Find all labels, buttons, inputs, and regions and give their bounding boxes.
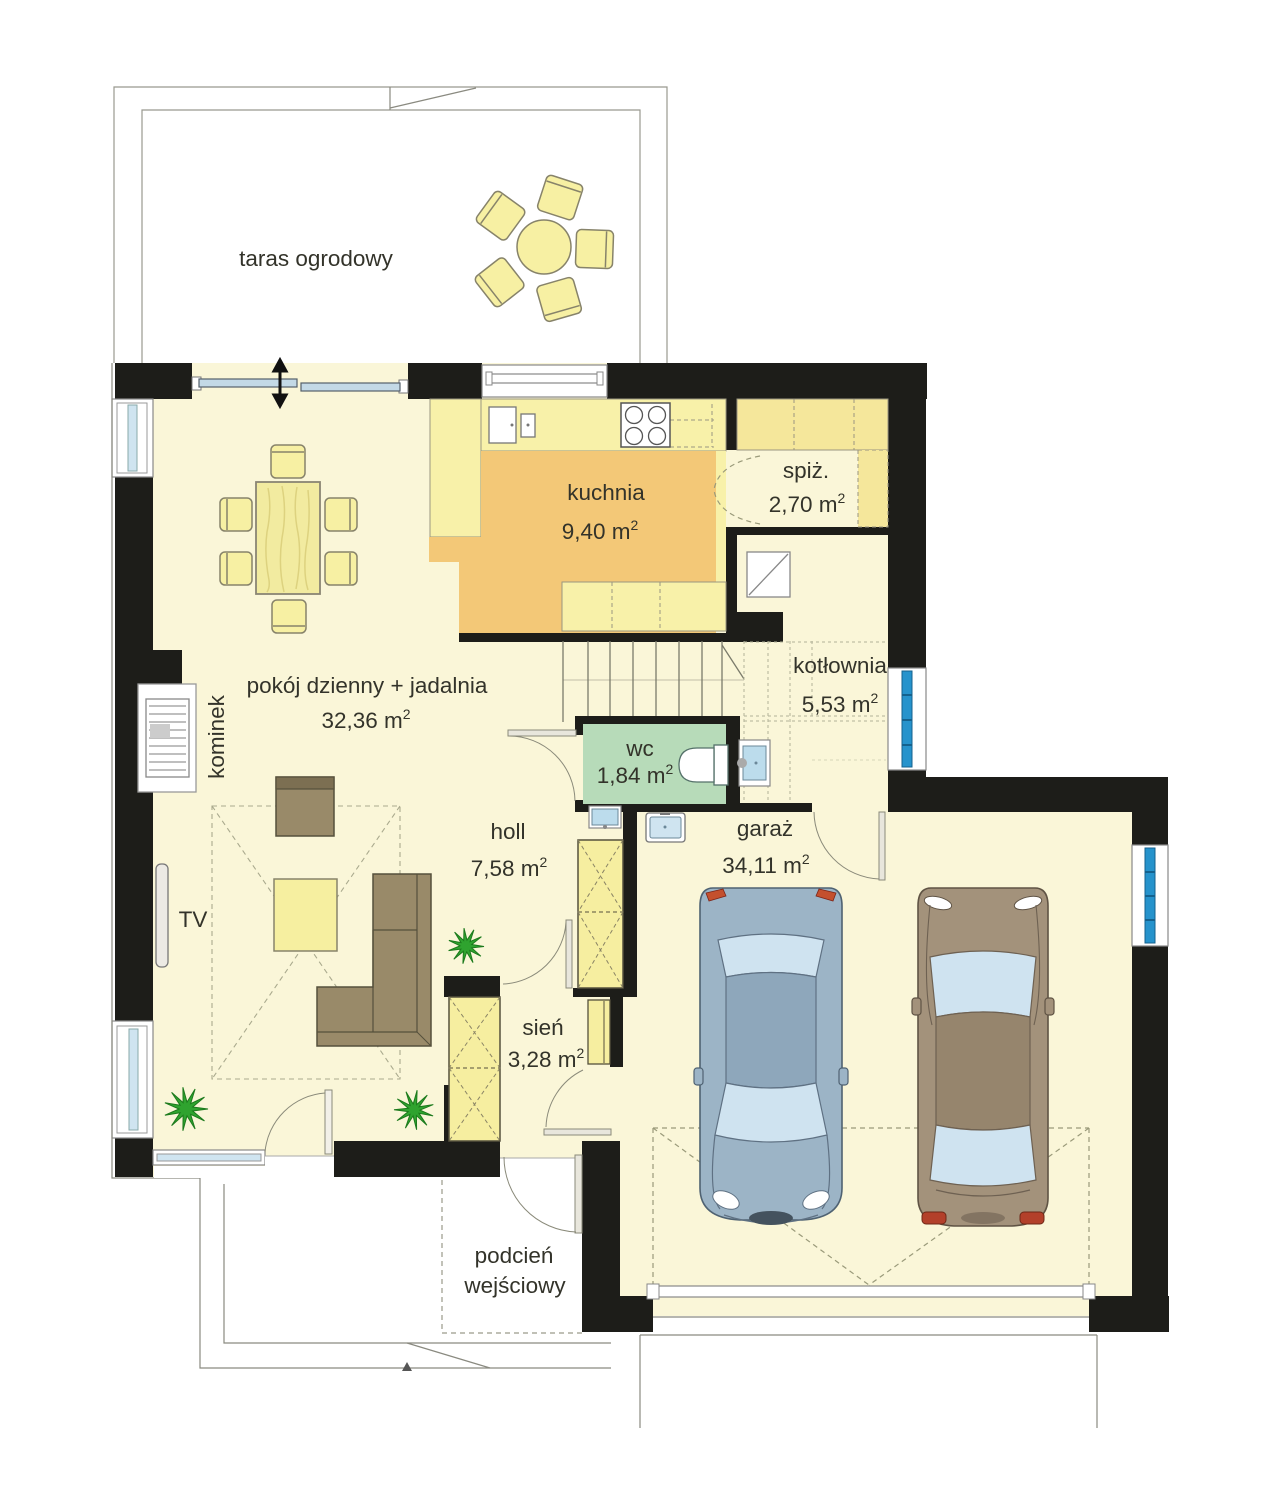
svg-text:taras ogrodowy: taras ogrodowy bbox=[239, 246, 394, 271]
svg-text:sień: sień bbox=[522, 1015, 563, 1040]
svg-text:1,84 m2: 1,84 m2 bbox=[597, 761, 674, 788]
svg-text:wc: wc bbox=[625, 736, 654, 761]
svg-text:pokój dzienny + jadalnia: pokój dzienny + jadalnia bbox=[247, 673, 488, 698]
svg-text:5,53 m2: 5,53 m2 bbox=[802, 690, 879, 717]
svg-text:wejściowy: wejściowy bbox=[463, 1273, 566, 1298]
svg-text:kominek: kominek bbox=[204, 694, 229, 779]
svg-text:holl: holl bbox=[490, 819, 525, 844]
svg-text:32,36 m2: 32,36 m2 bbox=[321, 706, 410, 733]
svg-text:kotłownia: kotłownia bbox=[793, 653, 887, 678]
svg-text:podcień: podcień bbox=[475, 1243, 554, 1268]
svg-text:kuchnia: kuchnia bbox=[567, 480, 645, 505]
svg-text:7,58 m2: 7,58 m2 bbox=[471, 854, 548, 881]
svg-text:34,11 m2: 34,11 m2 bbox=[722, 851, 810, 878]
svg-text:spiż.: spiż. bbox=[783, 458, 829, 483]
svg-text:TV: TV bbox=[179, 907, 208, 932]
svg-text:2,70 m2: 2,70 m2 bbox=[769, 490, 846, 517]
svg-text:3,28 m2: 3,28 m2 bbox=[508, 1045, 585, 1072]
svg-text:garaż: garaż bbox=[737, 816, 793, 841]
svg-text:9,40 m2: 9,40 m2 bbox=[562, 517, 639, 544]
